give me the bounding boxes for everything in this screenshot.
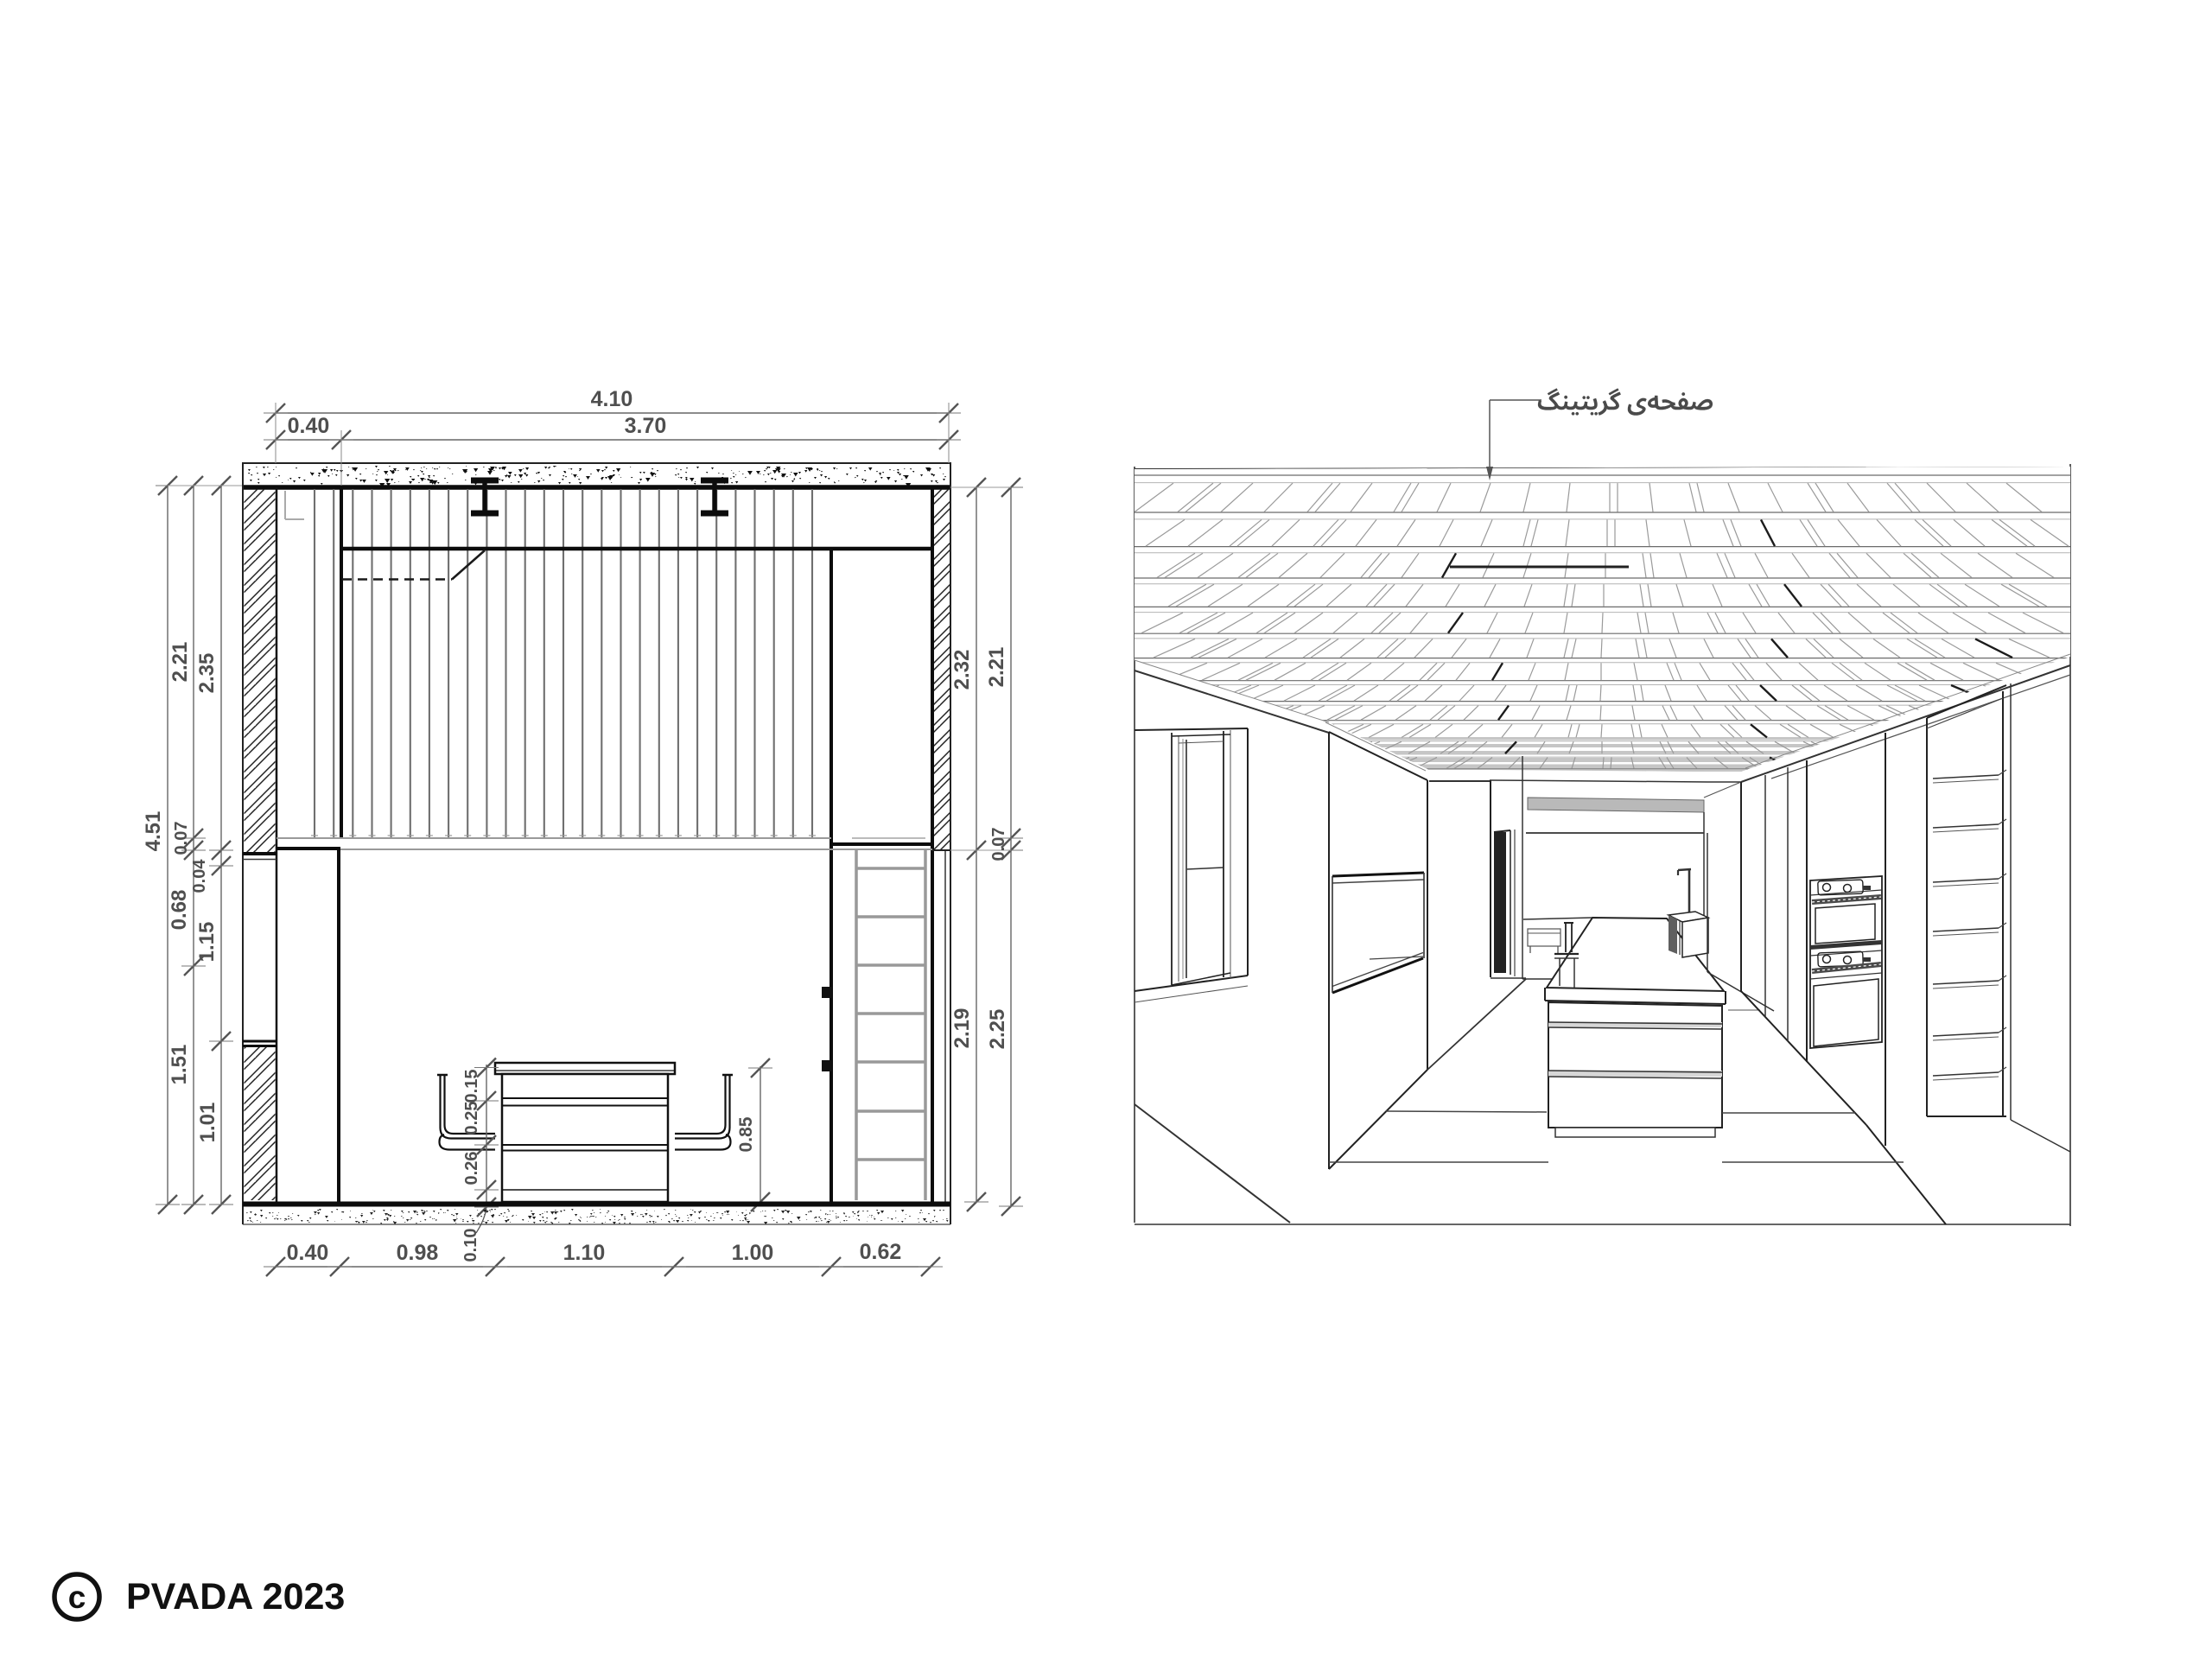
svg-text:1.15: 1.15 [195,922,219,963]
svg-text:0.07: 0.07 [172,822,191,855]
svg-text:0.85: 0.85 [736,1116,756,1152]
svg-text:1.51: 1.51 [168,1045,191,1085]
svg-text:2.32: 2.32 [950,650,974,690]
svg-text:1.01: 1.01 [196,1103,219,1143]
svg-text:1.10: 1.10 [563,1241,606,1265]
svg-text:0.25: 0.25 [462,1102,481,1135]
svg-text:4.10: 4.10 [591,387,633,411]
svg-text:2.21: 2.21 [985,647,1008,688]
svg-text:0.40: 0.40 [288,414,330,438]
svg-text:0.15: 0.15 [462,1070,481,1103]
svg-text:0.98: 0.98 [397,1241,439,1265]
svg-text:2.25: 2.25 [986,1009,1009,1050]
svg-text:PVADA 2023: PVADA 2023 [126,1576,345,1618]
svg-text:2.21: 2.21 [168,642,192,683]
svg-text:c: c [68,1580,86,1615]
svg-text:2.19: 2.19 [950,1008,974,1049]
svg-text:0.40: 0.40 [287,1241,329,1265]
svg-text:0.07: 0.07 [989,828,1008,861]
svg-text:0.68: 0.68 [168,890,191,931]
svg-text:0.10: 0.10 [461,1229,480,1262]
svg-text:4.51: 4.51 [142,811,165,852]
svg-text:0.26: 0.26 [462,1152,481,1185]
svg-text:3.70: 3.70 [625,414,667,438]
svg-text:0.04: 0.04 [190,859,209,893]
svg-text:2.35: 2.35 [195,653,219,694]
svg-text:1.00: 1.00 [732,1241,774,1265]
svg-text:0.62: 0.62 [860,1240,902,1264]
